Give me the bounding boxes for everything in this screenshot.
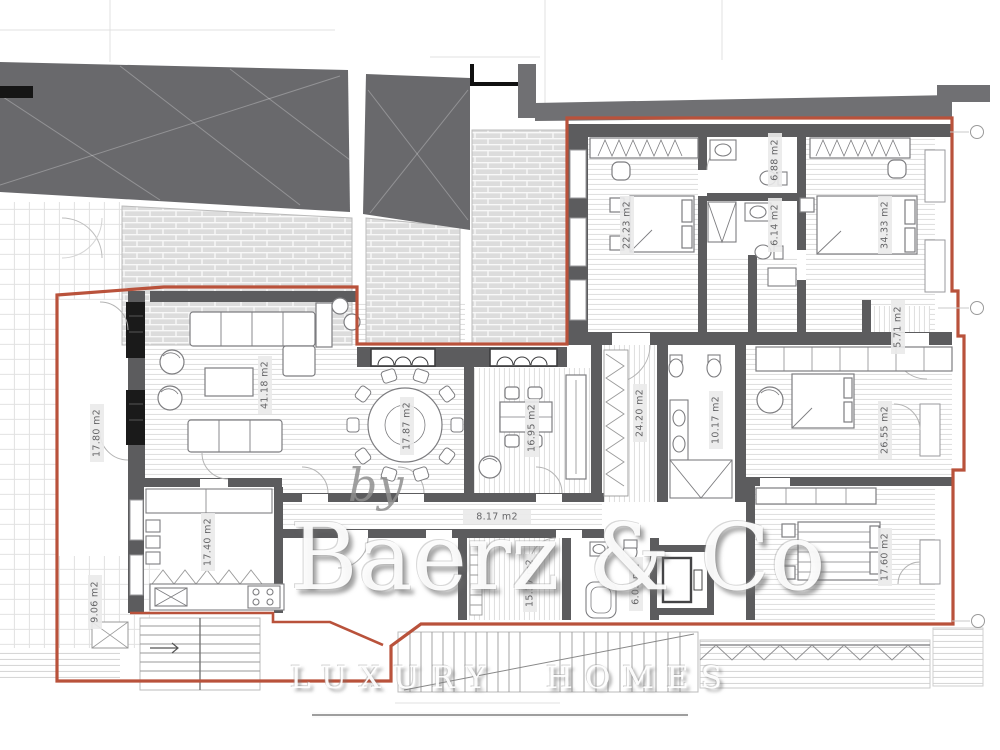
balcony xyxy=(700,628,983,688)
room-label-bedroom-d: 17.60 m2 xyxy=(878,528,892,586)
shower xyxy=(708,202,736,242)
room-label-terrace-main: 17.80 m2 xyxy=(90,404,104,462)
window xyxy=(130,500,143,540)
window xyxy=(920,540,940,584)
side-staircase xyxy=(140,618,260,690)
svg-text:26.55 m2: 26.55 m2 xyxy=(880,406,891,454)
chair xyxy=(505,387,519,399)
armchair xyxy=(888,160,906,178)
room-label-bedroom-c: 26.55 m2 xyxy=(878,401,892,459)
room-label-bath-master: 10.17 m2 xyxy=(709,391,723,449)
roof-left xyxy=(0,62,350,212)
room-label-bath-b: 6.14 m2 xyxy=(768,198,782,252)
shower xyxy=(670,460,732,498)
chair xyxy=(528,387,542,399)
svg-text:34.33 m2: 34.33 m2 xyxy=(880,201,891,249)
wardrobe xyxy=(810,138,910,158)
room-label-bedroom-a: 22.23 m2 xyxy=(620,196,634,254)
grid-bubble xyxy=(972,615,985,628)
room-label-bath-a: 6.88 m2 xyxy=(768,133,782,187)
armchair xyxy=(612,162,630,180)
svg-text:17.40 m2: 17.40 m2 xyxy=(203,518,214,566)
side-cabinet xyxy=(316,303,332,347)
roof-corner-block xyxy=(937,85,990,102)
sofa-chaise xyxy=(283,346,315,376)
stove xyxy=(248,586,280,608)
chimney-pillar xyxy=(518,64,536,118)
wall-cabinets xyxy=(146,489,272,513)
room-label-living: 41.18 m2 xyxy=(258,356,272,414)
svg-text:6.05 m2: 6.05 m2 xyxy=(631,563,642,605)
bed xyxy=(817,196,917,254)
room-label-dressing: 15.37 m2 xyxy=(523,554,537,612)
room-label-corridor-small: 5.71 m2 xyxy=(891,300,905,354)
room-label-dining: 17.87 m2 xyxy=(400,397,414,455)
window xyxy=(570,150,586,198)
room-label-hallway: 8.17 m2 xyxy=(463,510,531,524)
svg-text:9.06 m2: 9.06 m2 xyxy=(90,581,101,623)
plant xyxy=(332,298,348,314)
svg-text:17.60 m2: 17.60 m2 xyxy=(880,533,891,581)
window xyxy=(925,240,945,292)
elevator xyxy=(650,545,714,615)
svg-text:22.23 m2: 22.23 m2 xyxy=(622,201,633,249)
window xyxy=(925,150,945,202)
main-staircase xyxy=(398,632,698,692)
sofa xyxy=(190,312,315,346)
room-label-bath-small: 6.05 m2 xyxy=(629,557,643,611)
roof-center xyxy=(363,74,470,230)
window xyxy=(130,555,143,595)
svg-text:24.20 m2: 24.20 m2 xyxy=(635,389,646,437)
chimney-outline xyxy=(472,64,518,84)
svg-text:5.71 m2: 5.71 m2 xyxy=(893,306,904,348)
nightstand xyxy=(800,198,814,212)
window xyxy=(570,280,586,320)
grid-bubble xyxy=(971,126,984,139)
sofa xyxy=(188,420,282,452)
closet-row xyxy=(756,347,952,371)
bed xyxy=(798,522,880,580)
counter-chevrons xyxy=(152,570,262,584)
room-label-corridor: 24.20 m2 xyxy=(633,384,647,442)
cabinet xyxy=(768,268,796,286)
black-shutter xyxy=(126,302,145,358)
svg-text:17.80 m2: 17.80 m2 xyxy=(92,409,103,457)
chair xyxy=(505,435,519,447)
bidet xyxy=(707,359,721,377)
neighbor-black-bar xyxy=(0,86,33,98)
grid-bubble xyxy=(971,302,984,315)
coffee-table xyxy=(205,368,253,396)
room-label-kitchen: 17.40 m2 xyxy=(201,513,215,571)
bedroom-b-furniture xyxy=(800,138,917,254)
window xyxy=(920,404,940,456)
svg-text:16.95 m2: 16.95 m2 xyxy=(527,404,538,452)
floor-plan-drawing: 17.80 m2 9.06 m2 41.18 m2 17.87 m2 16.95… xyxy=(0,0,1000,750)
svg-text:15.37 m2: 15.37 m2 xyxy=(525,559,536,607)
window xyxy=(570,218,586,266)
svg-text:17.87 m2: 17.87 m2 xyxy=(402,402,413,450)
toilet xyxy=(669,359,683,377)
room-label-study: 16.95 m2 xyxy=(525,399,539,457)
black-shutter xyxy=(126,390,145,445)
neighbor-structure xyxy=(933,628,983,686)
room-label-terrace-lower: 9.06 m2 xyxy=(88,575,102,629)
nightstand xyxy=(782,566,795,579)
svg-text:6.88 m2: 6.88 m2 xyxy=(770,139,781,181)
room-label-bedroom-b: 34.33 m2 xyxy=(878,196,892,254)
svg-text:10.17 m2: 10.17 m2 xyxy=(711,396,722,444)
floor-plan-stage: 17.80 m2 9.06 m2 41.18 m2 17.87 m2 16.95… xyxy=(0,0,1000,750)
nightstand xyxy=(782,524,795,537)
svg-text:41.18 m2: 41.18 m2 xyxy=(260,361,271,409)
svg-text:8.17 m2: 8.17 m2 xyxy=(476,512,518,523)
svg-text:6.14 m2: 6.14 m2 xyxy=(770,204,781,246)
